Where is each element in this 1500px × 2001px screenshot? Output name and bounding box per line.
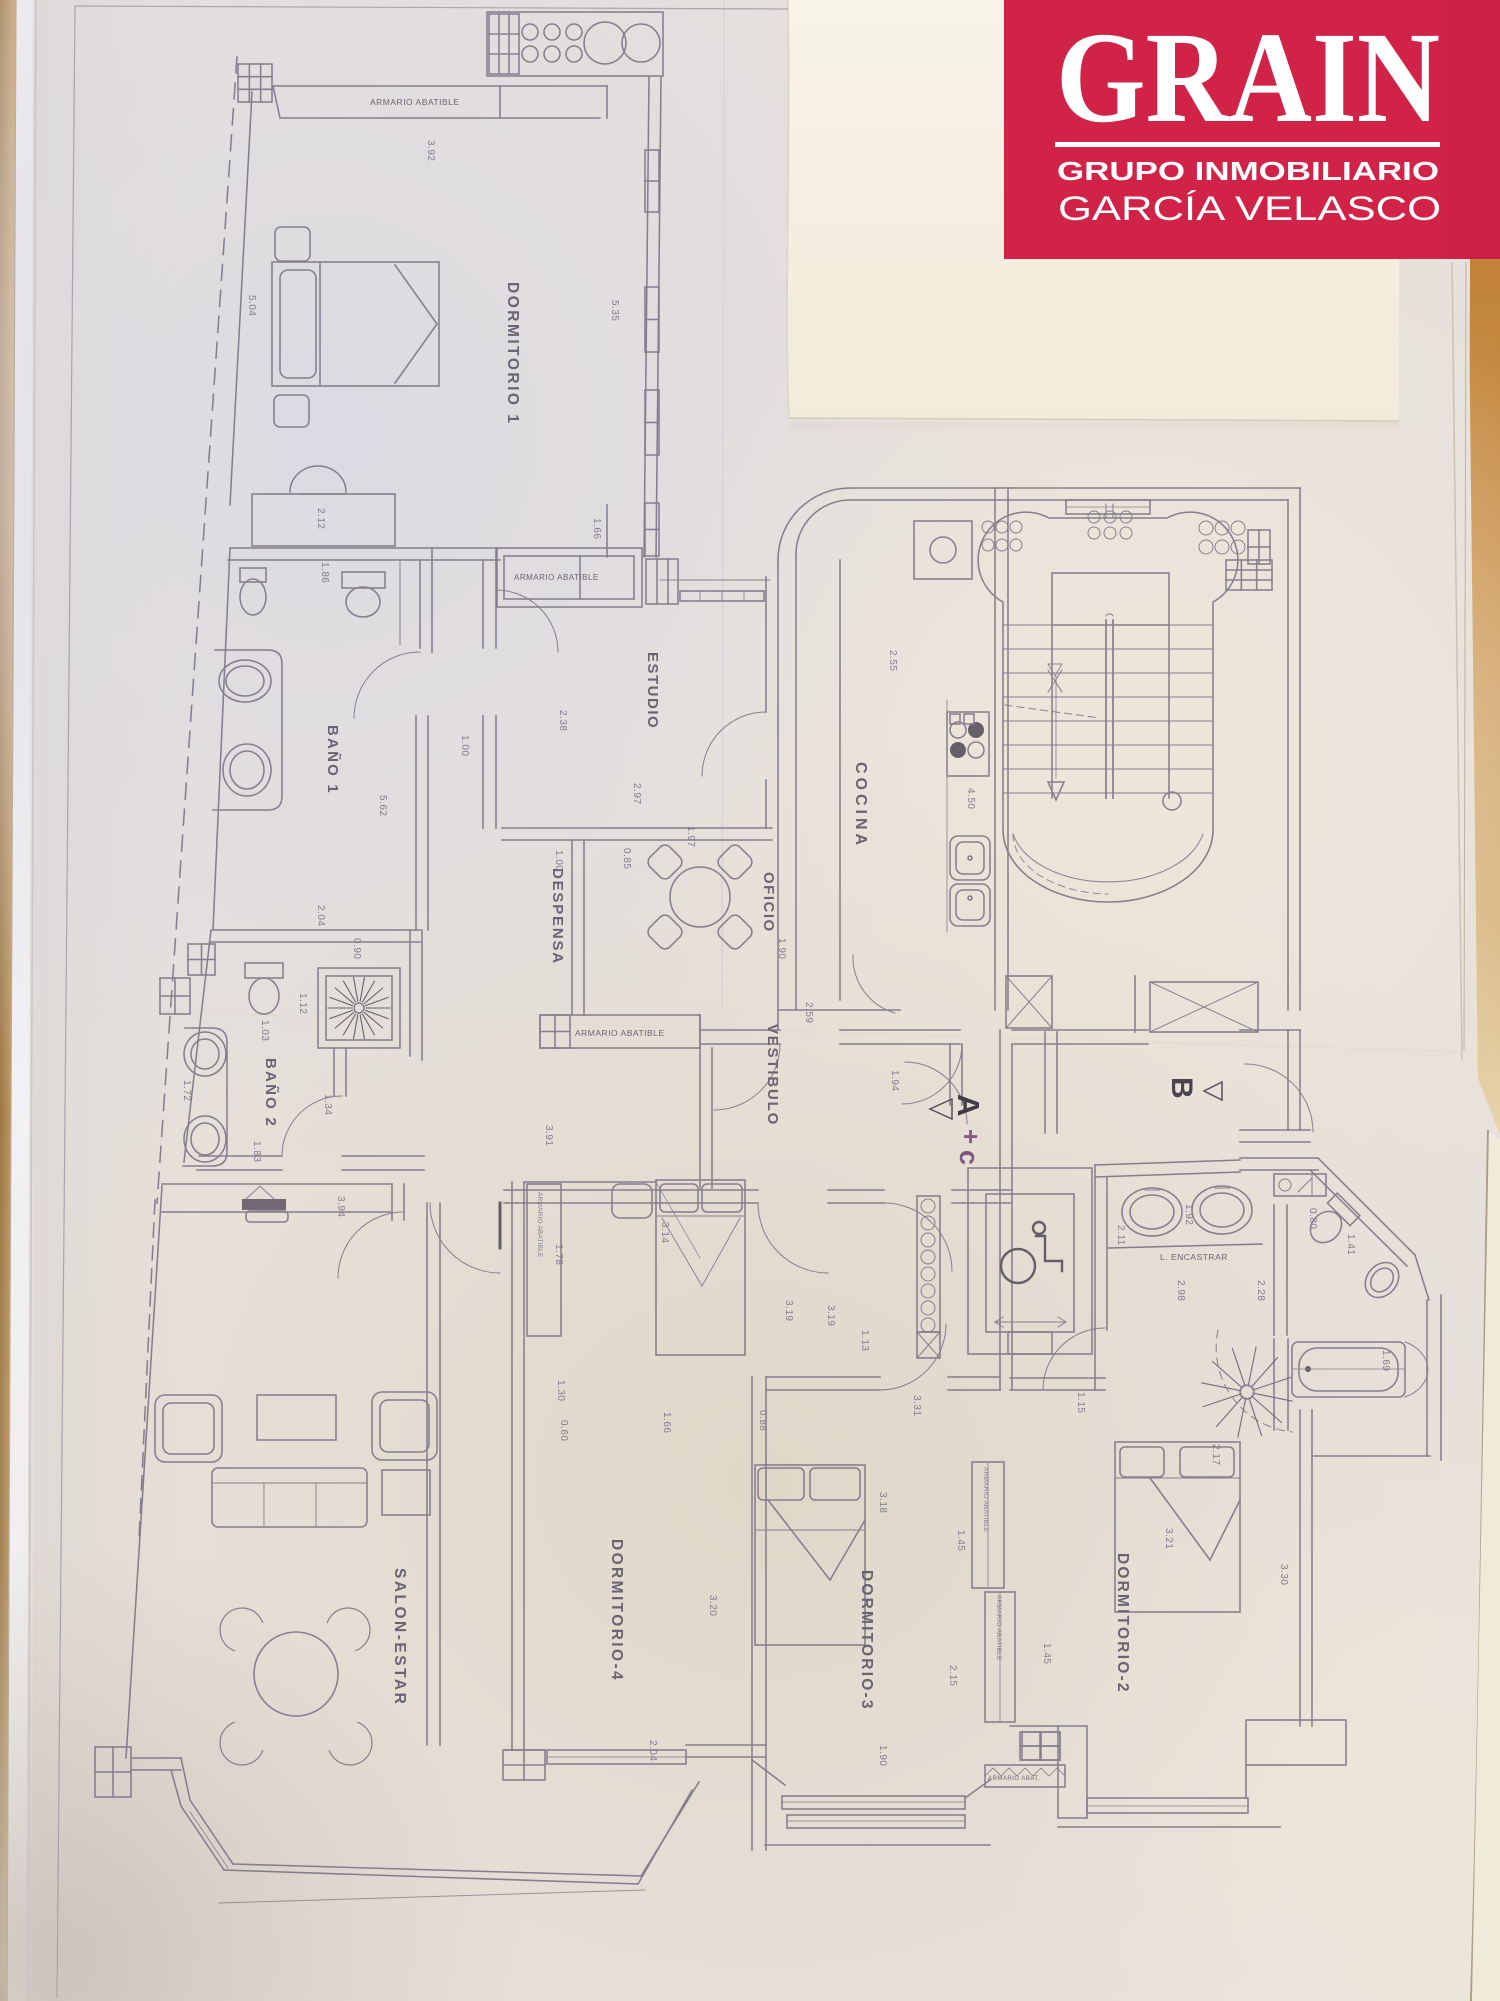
svg-text:BAÑO 2: BAÑO 2 <box>262 1058 280 1128</box>
svg-text:3.21: 3.21 <box>1163 1528 1174 1549</box>
svg-text:1.00: 1.00 <box>459 735 470 756</box>
svg-text:1.66: 1.66 <box>661 1412 672 1433</box>
svg-text:0.90: 0.90 <box>351 938 362 959</box>
svg-text:2.04: 2.04 <box>647 1740 658 1761</box>
svg-text:OFICIO: OFICIO <box>760 872 777 933</box>
svg-text:5.35: 5.35 <box>609 300 620 321</box>
svg-text:0.85: 0.85 <box>621 848 632 869</box>
svg-text:ARMARIO ABATIBLE: ARMARIO ABATIBLE <box>982 1467 989 1533</box>
svg-text:1.90: 1.90 <box>877 1745 888 1766</box>
svg-text:1.92: 1.92 <box>1183 1204 1194 1225</box>
svg-text:1.41: 1.41 <box>1345 1234 1356 1255</box>
svg-text:3.19: 3.19 <box>783 1300 794 1321</box>
svg-text:1.66: 1.66 <box>591 518 602 539</box>
svg-text:GRAIN: GRAIN <box>1056 6 1440 150</box>
svg-text:ARMARIO ABATIBLE: ARMARIO ABATIBLE <box>575 1028 665 1038</box>
svg-text:2.97: 2.97 <box>631 783 642 804</box>
svg-text:5.62: 5.62 <box>377 795 388 816</box>
svg-text:0.88: 0.88 <box>757 1410 768 1431</box>
svg-text:B: B <box>1165 1077 1198 1099</box>
svg-text:1.45: 1.45 <box>1041 1643 1052 1664</box>
svg-text:c: c <box>954 1150 984 1165</box>
svg-text:2.11: 2.11 <box>1115 1225 1126 1246</box>
svg-text:2.15: 2.15 <box>947 1665 958 1686</box>
svg-text:BAÑO 1: BAÑO 1 <box>324 725 342 795</box>
svg-text:1.94: 1.94 <box>889 1070 900 1091</box>
svg-text:1.72: 1.72 <box>181 1080 192 1101</box>
svg-text:1.03: 1.03 <box>259 1020 270 1041</box>
svg-text:+: + <box>956 1129 986 1144</box>
svg-text:3.92: 3.92 <box>425 140 436 161</box>
svg-text:3.94: 3.94 <box>335 1196 346 1217</box>
svg-text:2.12: 2.12 <box>315 508 326 529</box>
svg-text:GRUPO INMOBILIARIO: GRUPO INMOBILIARIO <box>1057 158 1439 186</box>
svg-text:4.50: 4.50 <box>965 788 976 809</box>
svg-text:1.45: 1.45 <box>955 1530 966 1551</box>
svg-text:DESPENSA: DESPENSA <box>549 868 566 965</box>
svg-text:3.91: 3.91 <box>543 1125 554 1146</box>
svg-text:1.00: 1.00 <box>553 850 564 871</box>
svg-text:ESTUDIO: ESTUDIO <box>644 652 661 729</box>
svg-text:1.86: 1.86 <box>319 562 330 583</box>
svg-text:DORMITORIO-4: DORMITORIO-4 <box>608 1539 625 1682</box>
svg-text:A: A <box>951 1094 986 1116</box>
svg-text:COCINA: COCINA <box>852 762 869 849</box>
svg-text:1.90: 1.90 <box>776 938 787 959</box>
svg-text:2.28: 2.28 <box>1255 1280 1266 1301</box>
svg-text:DORMITORIO-2: DORMITORIO-2 <box>1114 1553 1131 1694</box>
svg-text:0.60: 0.60 <box>558 1420 569 1441</box>
svg-text:2.17: 2.17 <box>1210 1444 1221 1465</box>
svg-text:DORMITORIO-3: DORMITORIO-3 <box>858 1570 875 1711</box>
svg-text:2.55: 2.55 <box>887 650 898 671</box>
svg-text:1.97: 1.97 <box>685 826 696 847</box>
svg-text:1.83: 1.83 <box>251 1141 262 1162</box>
svg-text:0.80: 0.80 <box>1307 1208 1318 1229</box>
svg-text:1.30: 1.30 <box>555 1380 566 1401</box>
svg-text:1.69: 1.69 <box>1380 1350 1391 1371</box>
svg-text:DORMITORIO 1: DORMITORIO 1 <box>504 282 521 425</box>
svg-text:ARMARIO ABAT.: ARMARIO ABAT. <box>988 1776 1040 1782</box>
svg-text:2.38: 2.38 <box>557 710 568 731</box>
svg-text:L. ENCASTRAR: L. ENCASTRAR <box>1160 1252 1228 1262</box>
svg-text:GARCÍA VELASCO: GARCÍA VELASCO <box>1058 189 1441 228</box>
svg-text:ARMARIO ABATIBLE: ARMARIO ABATIBLE <box>995 1595 1002 1661</box>
svg-text:2.98: 2.98 <box>1175 1280 1186 1301</box>
svg-text:3.18: 3.18 <box>877 1492 888 1513</box>
svg-text:1.12: 1.12 <box>297 993 308 1014</box>
svg-text:5.04: 5.04 <box>246 295 257 316</box>
svg-text:3.30: 3.30 <box>1278 1564 1289 1585</box>
svg-text:1.15: 1.15 <box>1075 1392 1086 1413</box>
svg-text:2.59: 2.59 <box>803 1002 814 1023</box>
svg-text:1.13: 1.13 <box>859 1330 870 1351</box>
svg-text:1.34: 1.34 <box>322 1094 333 1115</box>
svg-text:VESTIBULO: VESTIBULO <box>764 1024 781 1126</box>
svg-text:3.31: 3.31 <box>911 1395 922 1416</box>
svg-text:ARMARIO ABATIBLE: ARMARIO ABATIBLE <box>536 1192 543 1258</box>
svg-text:3.20: 3.20 <box>707 1595 718 1616</box>
svg-text:2.04: 2.04 <box>315 905 326 926</box>
svg-text:3.14: 3.14 <box>659 1222 670 1243</box>
svg-text:ARMARIO ABATIBLE: ARMARIO ABATIBLE <box>514 573 599 582</box>
svg-text:3.19: 3.19 <box>825 1305 836 1326</box>
svg-text:ARMARIO ABATIBLE: ARMARIO ABATIBLE <box>370 97 460 107</box>
svg-text:1.78: 1.78 <box>553 1244 564 1265</box>
svg-text:SALON-ESTAR: SALON-ESTAR <box>391 1568 408 1706</box>
